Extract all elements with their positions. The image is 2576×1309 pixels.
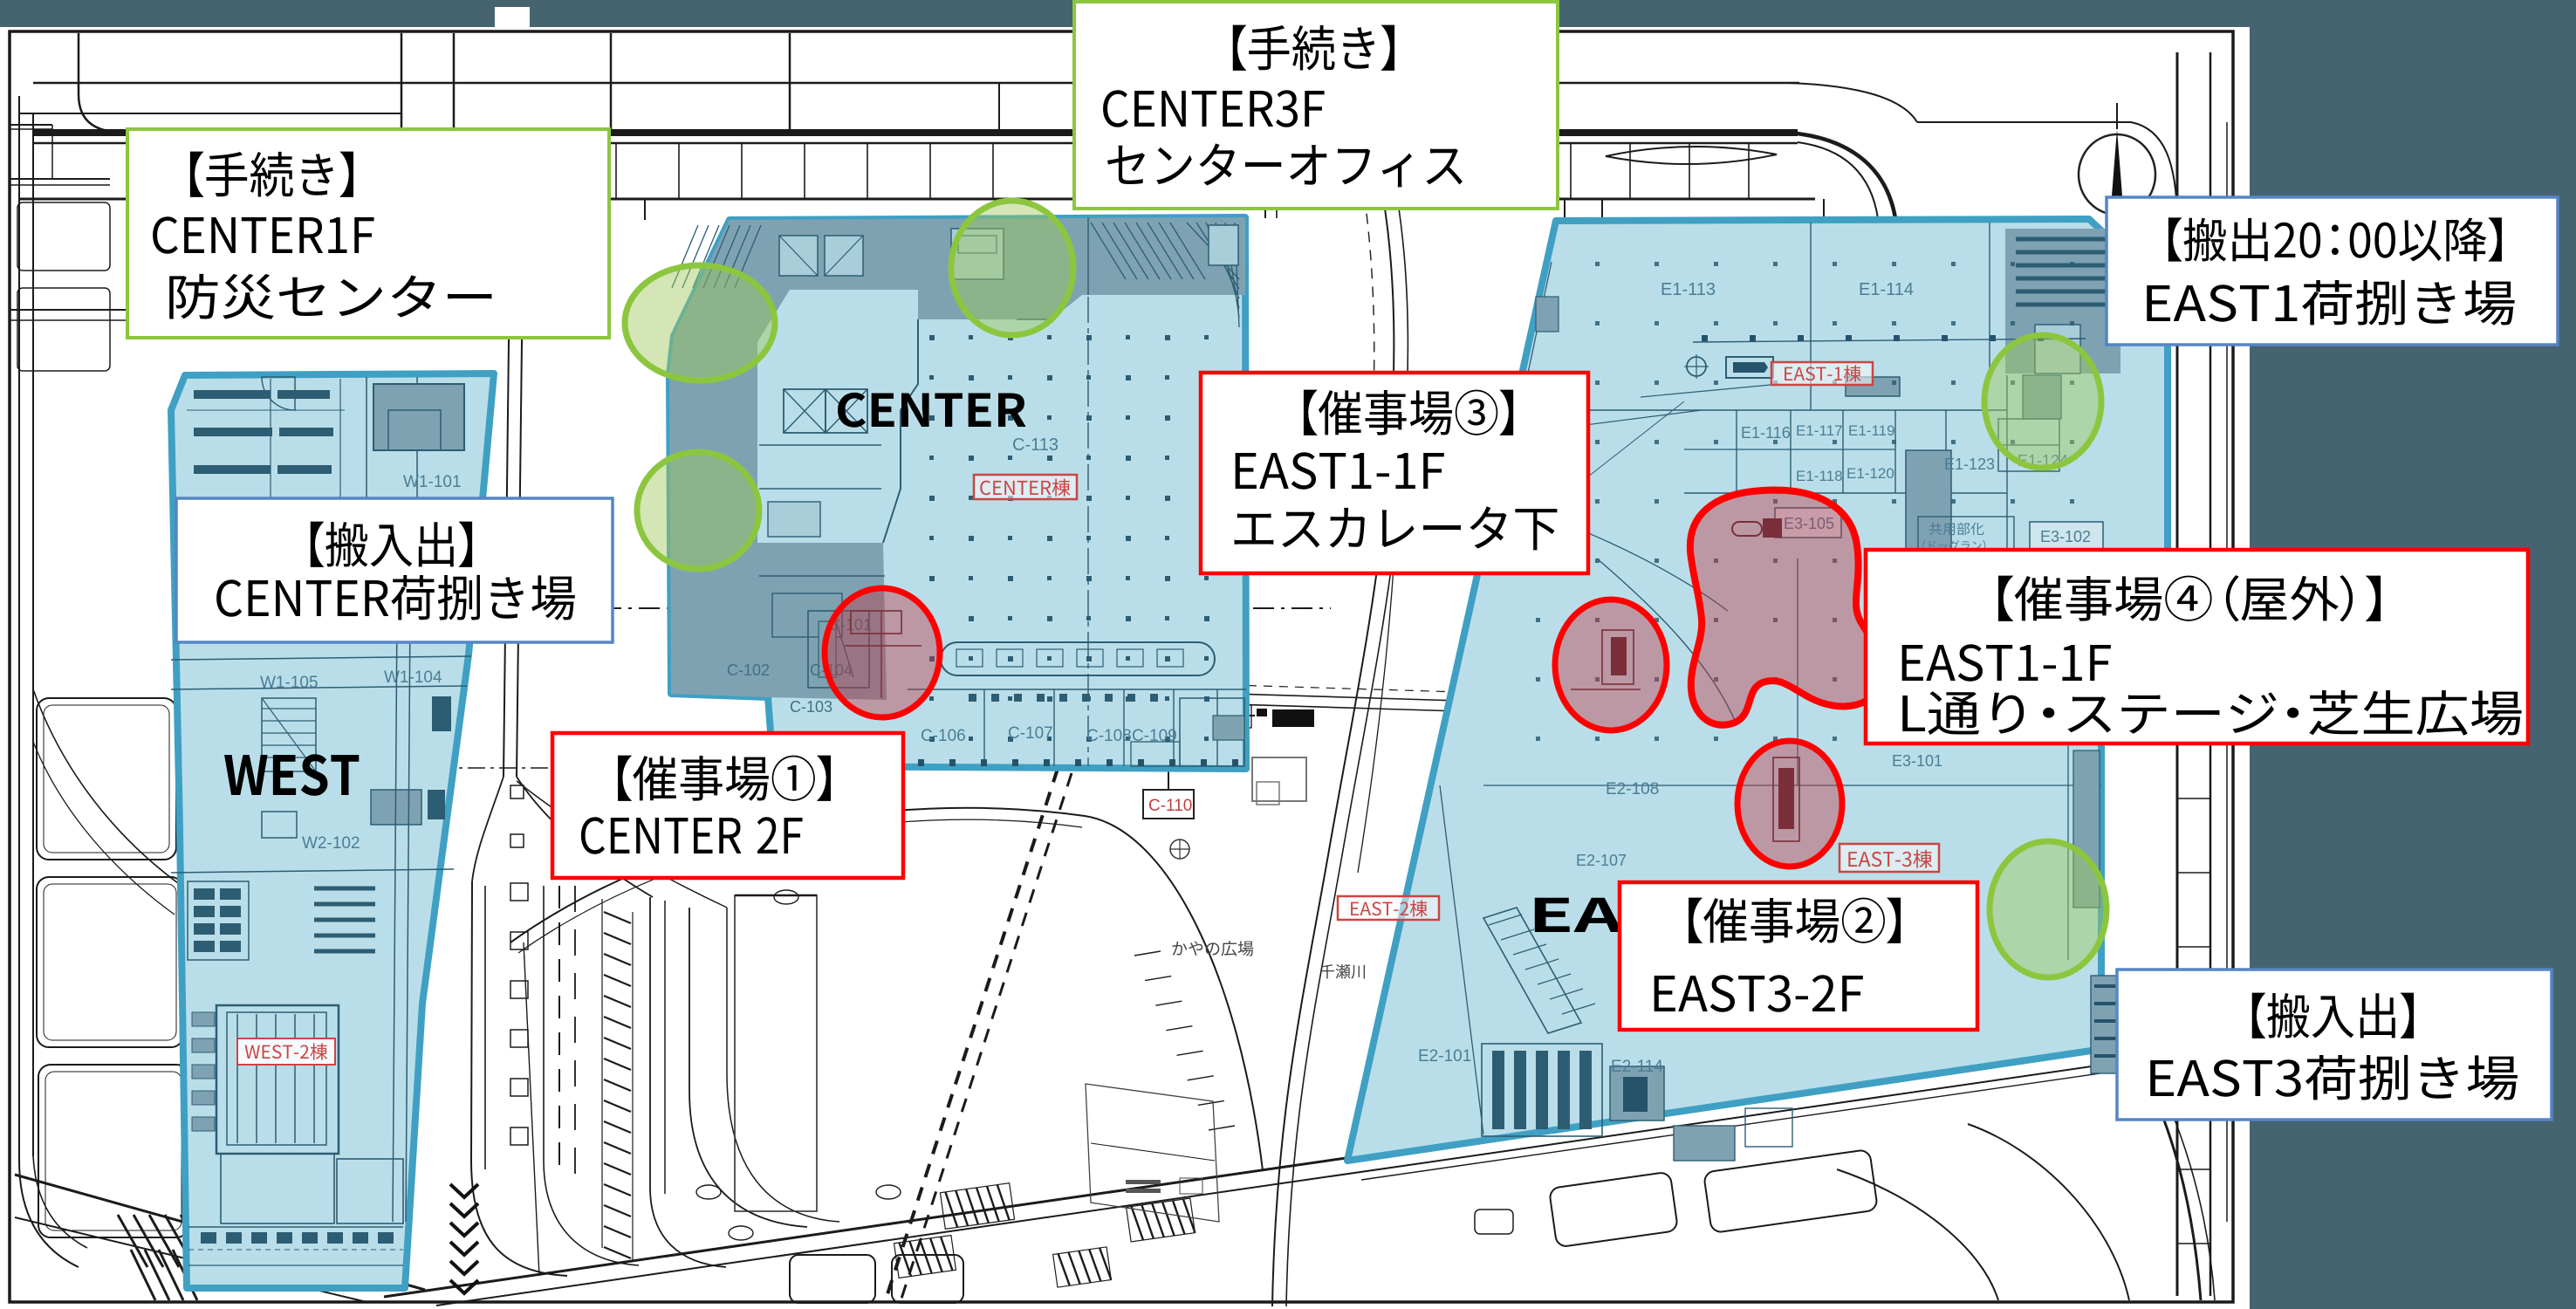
svg-text:C-110: C-110 xyxy=(1148,797,1192,815)
svg-text:E1-123: E1-123 xyxy=(1944,456,1995,473)
svg-text:C-106: C-106 xyxy=(921,727,966,745)
svg-text:E2-108: E2-108 xyxy=(1606,780,1659,798)
svg-text:C-107: C-107 xyxy=(1008,724,1053,743)
svg-text:W2-102: W2-102 xyxy=(302,834,360,853)
svg-text:E1-114: E1-114 xyxy=(1859,280,1914,299)
svg-text:W1-104: W1-104 xyxy=(384,668,442,687)
svg-text:E3-102: E3-102 xyxy=(2040,528,2091,545)
svg-text:E1-116: E1-116 xyxy=(1741,424,1791,442)
svg-text:W1-101: W1-101 xyxy=(403,473,462,491)
svg-text:E1-117: E1-117 xyxy=(1796,422,1843,439)
svg-text:E1-113: E1-113 xyxy=(1661,280,1716,299)
svg-text:C-108: C-108 xyxy=(1086,727,1132,745)
svg-text:E2-107: E2-107 xyxy=(1576,852,1627,869)
svg-text:C-113: C-113 xyxy=(1012,435,1058,455)
svg-text:E1-118: E1-118 xyxy=(1796,468,1843,484)
svg-text:E1-120: E1-120 xyxy=(1846,465,1894,482)
svg-text:C-109: C-109 xyxy=(1132,727,1177,745)
svg-text:W1-105: W1-105 xyxy=(260,674,319,692)
svg-text:E1-119: E1-119 xyxy=(1848,422,1895,439)
svg-text:E3-101: E3-101 xyxy=(1892,752,1942,770)
svg-text:C-103: C-103 xyxy=(790,698,832,716)
svg-text:E2-114: E2-114 xyxy=(1611,1058,1663,1076)
svg-text:C-102: C-102 xyxy=(727,661,770,679)
svg-text:E2-101: E2-101 xyxy=(1418,1047,1471,1066)
